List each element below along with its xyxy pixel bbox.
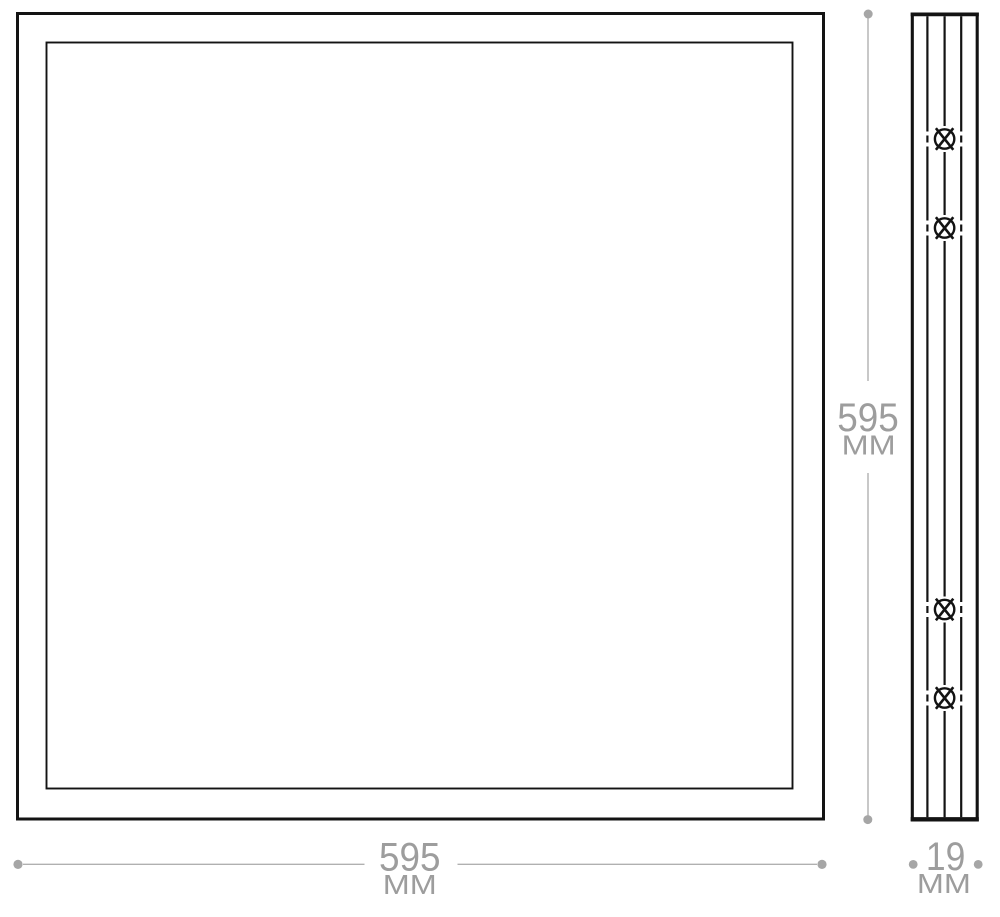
svg-text:MM: MM	[917, 868, 971, 899]
svg-text:MM: MM	[383, 869, 437, 900]
svg-text:MM: MM	[842, 429, 896, 460]
